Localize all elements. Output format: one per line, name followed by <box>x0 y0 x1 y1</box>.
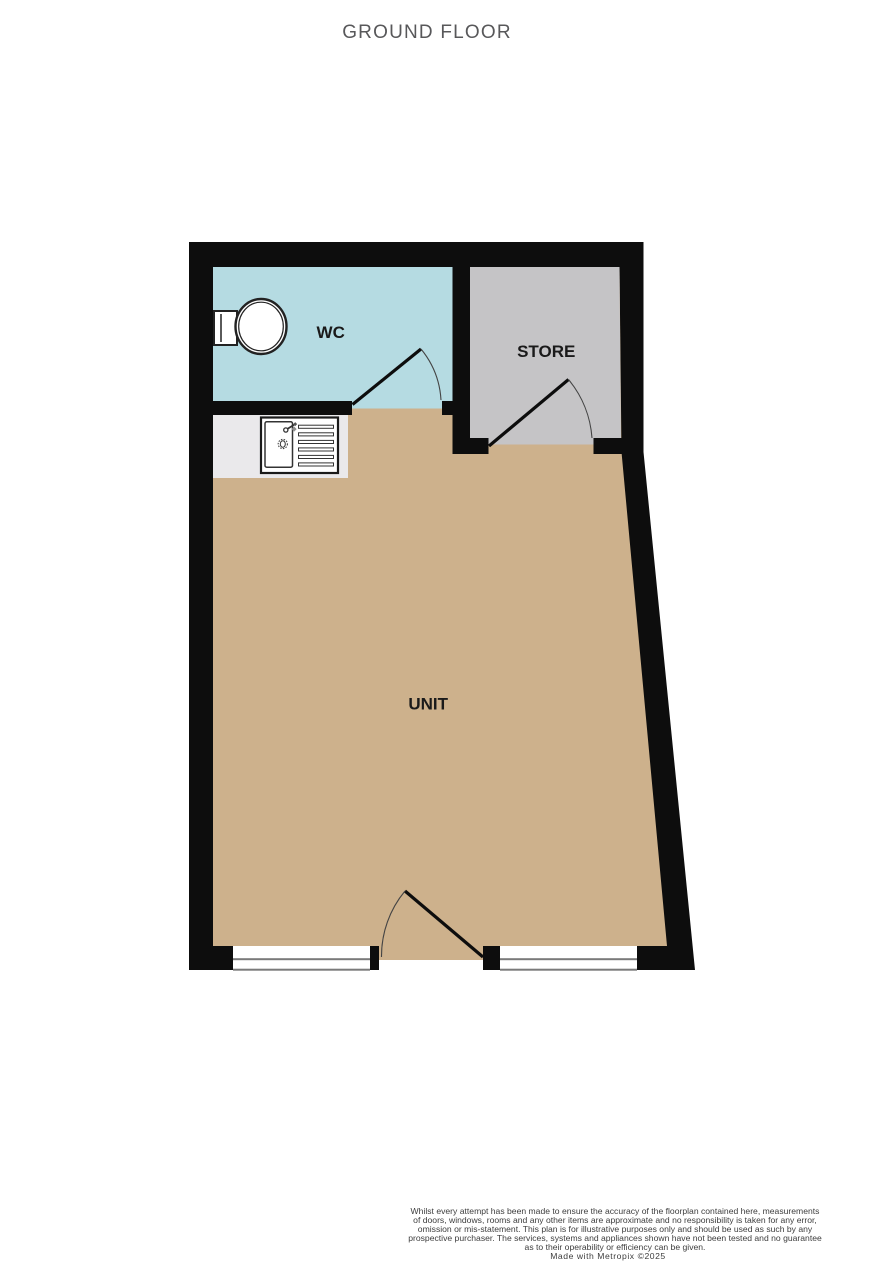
svg-text:STORE: STORE <box>517 342 575 361</box>
svg-text:WC: WC <box>317 323 345 342</box>
svg-text:UNIT: UNIT <box>408 695 448 714</box>
